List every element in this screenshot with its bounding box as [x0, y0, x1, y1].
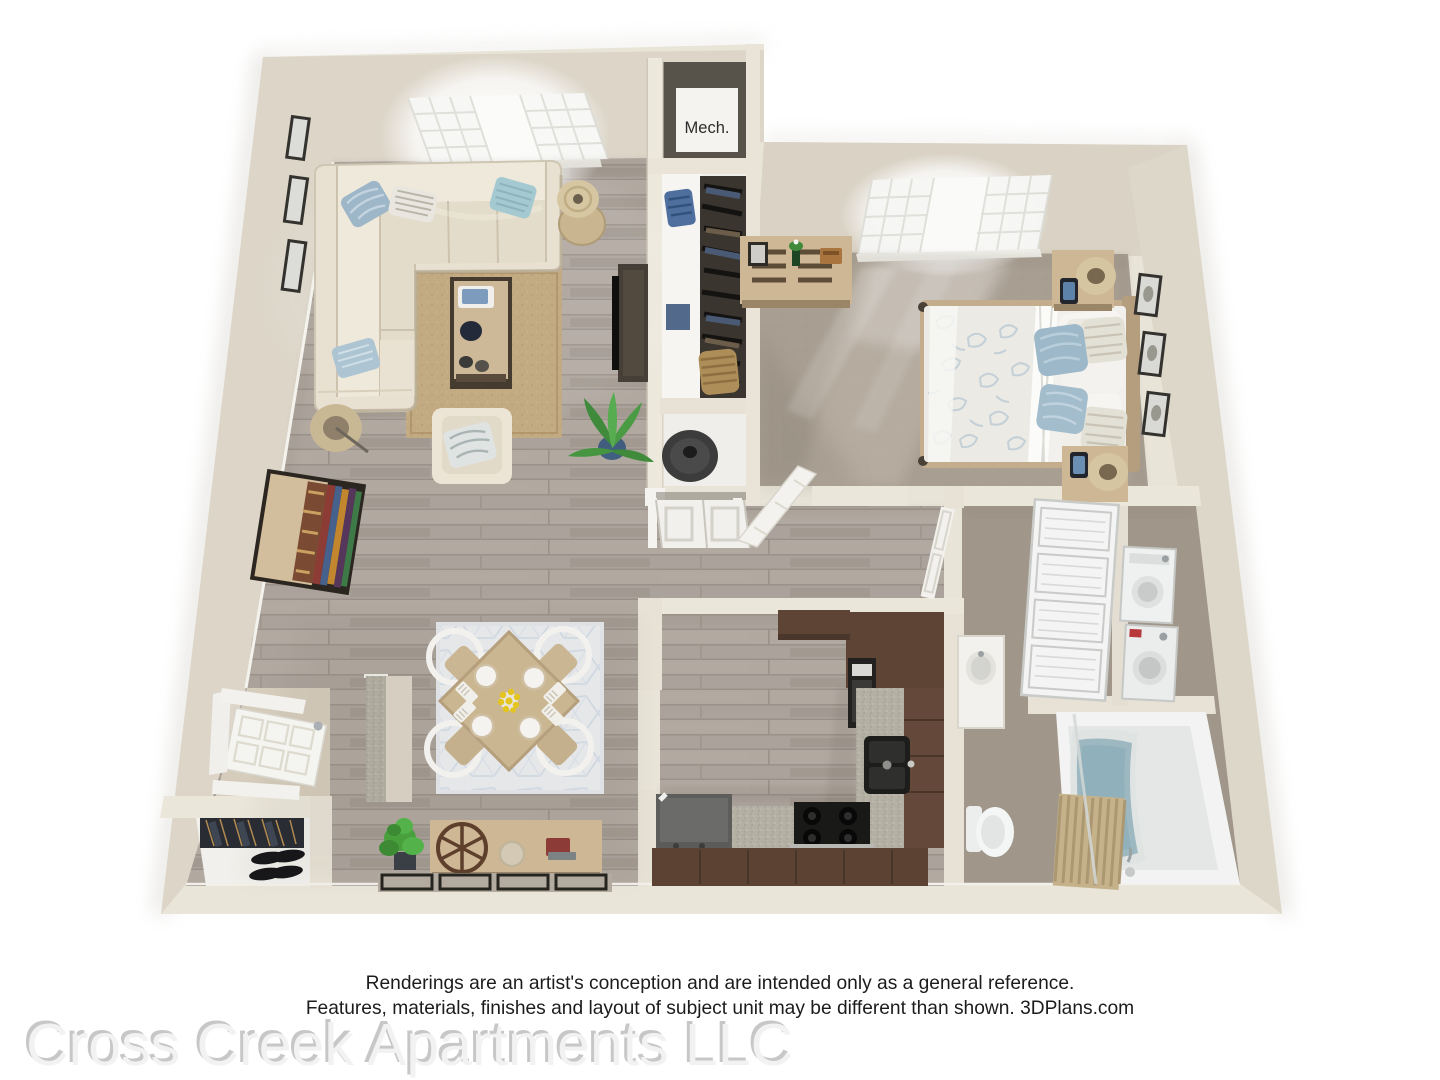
svg-text:Renderings are an artist's con: Renderings are an artist's conception an… — [366, 973, 1075, 994]
svg-text:Cross Creek Apartments LLC: Cross Creek Apartments LLC — [26, 1012, 793, 1078]
svg-text:Mech.: Mech. — [685, 119, 730, 137]
